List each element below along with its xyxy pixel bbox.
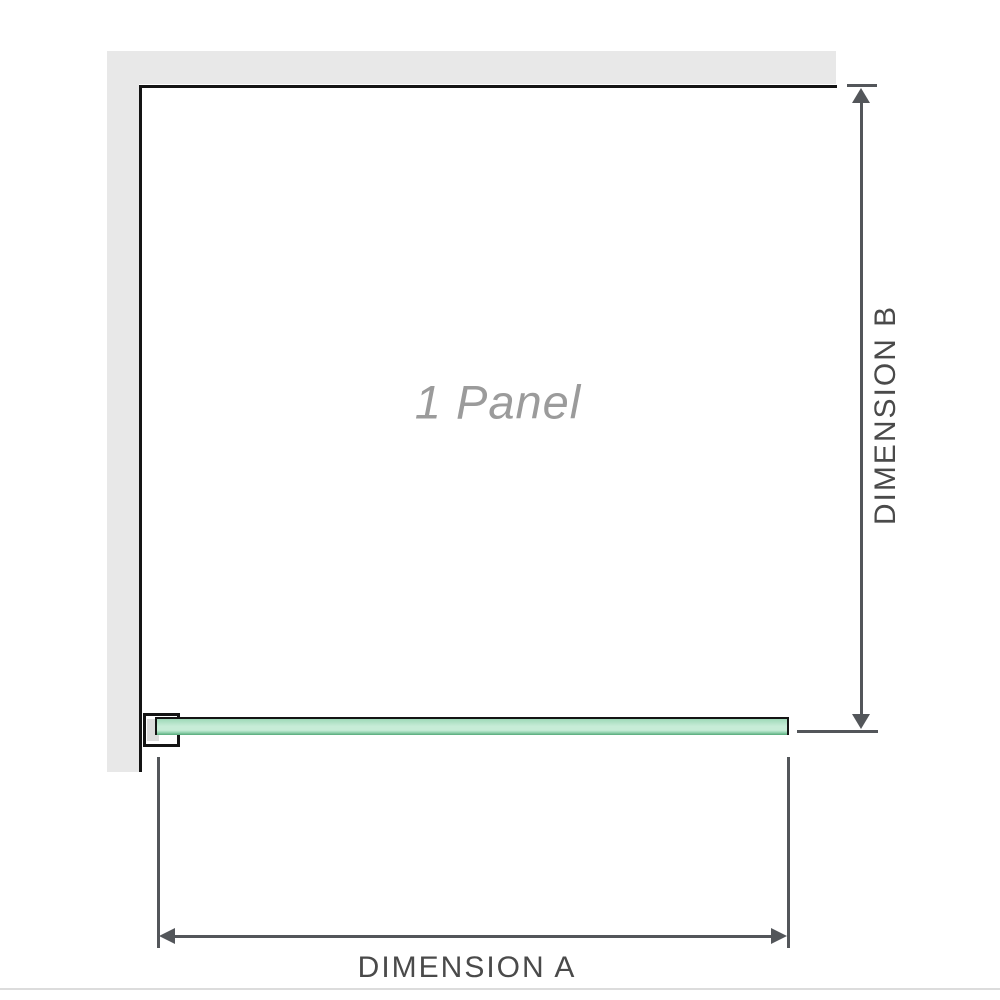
dimension-b-bottom-tick bbox=[797, 730, 878, 733]
panel-count-label: 1 Panel bbox=[415, 375, 581, 430]
arrow-down-icon bbox=[852, 714, 870, 729]
panel-left-edge bbox=[139, 85, 142, 772]
arrow-left-icon bbox=[159, 928, 175, 944]
glass-panel bbox=[155, 717, 789, 735]
wall-top-section bbox=[107, 51, 836, 84]
panel-dimension-diagram: 1 Panel DIMENSION B DIMENSION A bbox=[0, 0, 1000, 1000]
arrow-right-icon bbox=[771, 928, 787, 944]
dimension-a-label: DIMENSION A bbox=[358, 951, 577, 985]
dimension-a-left-extension bbox=[157, 757, 160, 948]
dimension-a-line bbox=[172, 935, 774, 938]
panel-top-edge bbox=[139, 85, 837, 88]
dimension-b-line bbox=[860, 99, 863, 717]
dimension-a-right-extension bbox=[787, 757, 790, 948]
dimension-b-top-tick bbox=[847, 84, 877, 87]
wall-side-section bbox=[107, 51, 139, 772]
arrow-up-icon bbox=[852, 88, 870, 103]
dimension-b-label: DIMENSION B bbox=[869, 305, 903, 525]
page-divider bbox=[0, 988, 1000, 990]
